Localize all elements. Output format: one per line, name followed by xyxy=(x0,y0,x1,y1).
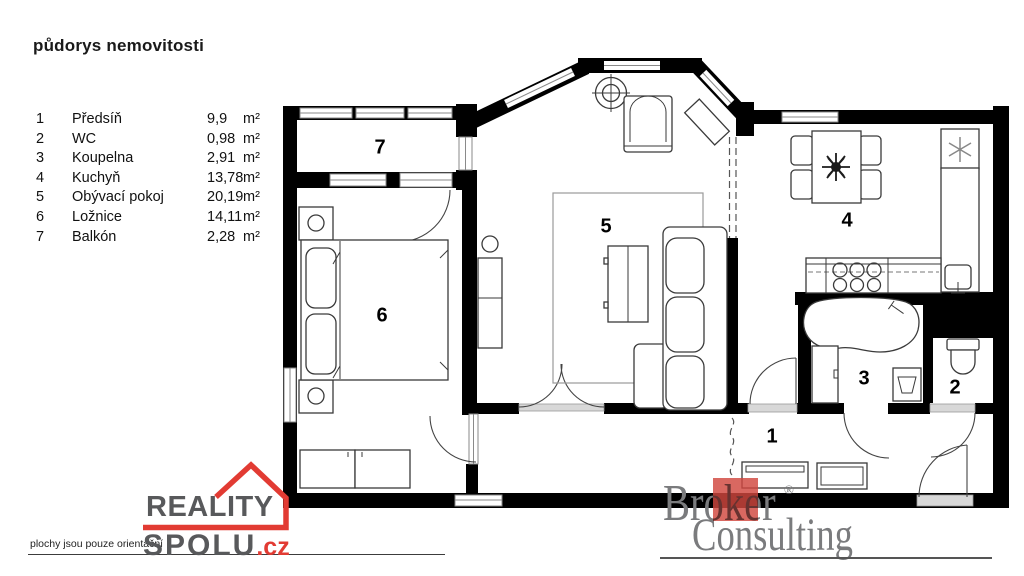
furniture-bedroom xyxy=(299,207,448,488)
reality-logo-tld: .cz xyxy=(256,533,289,561)
floor-plan-page: půdorys nemovitosti 1 Předsíň 9,9 m² 2 W… xyxy=(0,0,1024,576)
room-number-3: 3 xyxy=(858,368,869,391)
reality-spolu-logo: SPOLU.cz xyxy=(143,531,290,561)
furniture-living xyxy=(478,74,729,410)
room-number-6: 6 xyxy=(376,305,387,328)
broker-underline xyxy=(660,557,992,559)
room-number-7: 7 xyxy=(374,137,385,160)
room-number-4: 4 xyxy=(841,210,852,233)
broker-red-square xyxy=(713,478,758,521)
broker-consulting-logo: Broker ® Consulting xyxy=(660,474,1000,564)
room-number-1: 1 xyxy=(766,426,777,449)
reality-logo-word1: REALITY xyxy=(146,493,274,522)
room-number-5: 5 xyxy=(600,216,611,239)
registered-mark-icon: ® xyxy=(784,482,794,498)
reality-logo-word2: SPOLU xyxy=(143,529,256,562)
room-number-2: 2 xyxy=(949,377,960,400)
furniture-kitchen xyxy=(791,129,979,293)
